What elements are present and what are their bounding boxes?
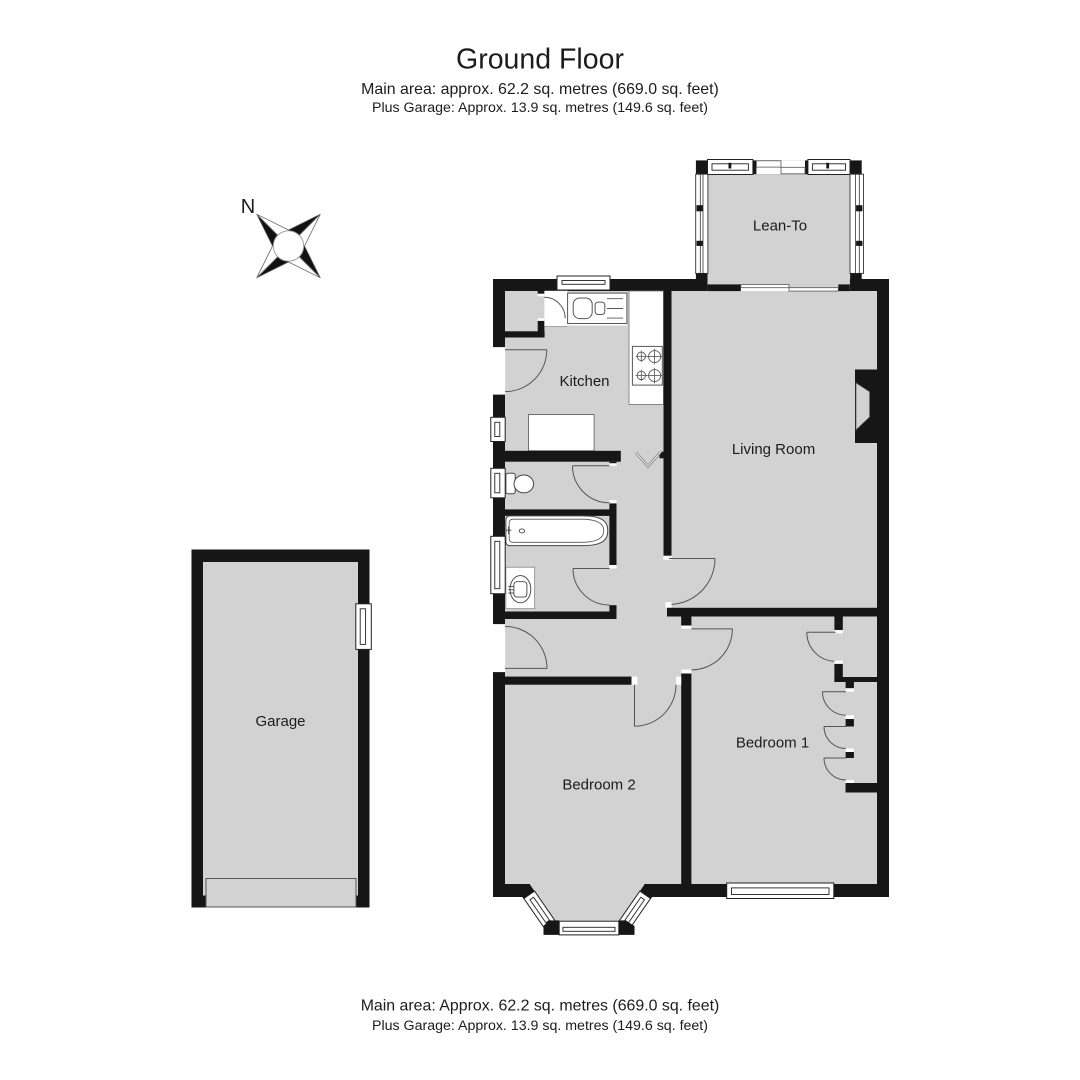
svg-text:Ground Floor: Ground Floor: [456, 44, 624, 76]
svg-text:N: N: [241, 196, 255, 218]
svg-text:Living Room: Living Room: [732, 441, 815, 458]
svg-text:Bedroom 2: Bedroom 2: [562, 777, 635, 794]
svg-text:Lean-To: Lean-To: [753, 218, 807, 235]
svg-text:Main area: Approx. 62.2 sq. me: Main area: Approx. 62.2 sq. metres (669.…: [361, 998, 720, 1015]
svg-text:Plus Garage: Approx. 13.9 sq.: Plus Garage: Approx. 13.9 sq. metres (14…: [372, 100, 708, 116]
svg-text:Plus Garage: Approx. 13.9 sq.: Plus Garage: Approx. 13.9 sq. metres (14…: [372, 1018, 708, 1034]
svg-text:Bedroom 1: Bedroom 1: [736, 735, 809, 752]
svg-text:Main area: approx. 62.2 sq. me: Main area: approx. 62.2 sq. metres (669.…: [361, 81, 719, 98]
svg-text:Kitchen: Kitchen: [559, 373, 609, 390]
svg-text:Garage: Garage: [255, 713, 305, 730]
